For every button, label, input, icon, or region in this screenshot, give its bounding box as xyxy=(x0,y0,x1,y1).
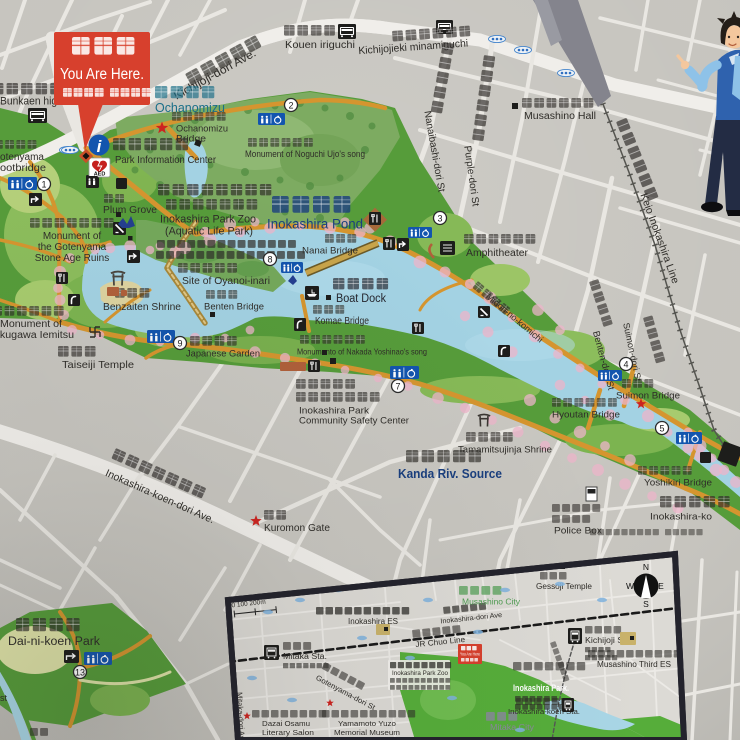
svg-text:Plum Grove: Plum Grove xyxy=(103,205,157,216)
svg-text:st: st xyxy=(0,693,8,703)
svg-text:Hyoutan Bridge: Hyoutan Bridge xyxy=(552,409,620,420)
svg-text:13: 13 xyxy=(75,667,85,677)
svg-text:okugawa Iemitsu: okugawa Iemitsu xyxy=(0,330,74,341)
svg-text:4: 4 xyxy=(623,359,628,369)
svg-text:7: 7 xyxy=(395,381,400,391)
svg-text:You Are Here.: You Are Here. xyxy=(60,66,144,83)
svg-text:You Are Here: You Are Here xyxy=(460,652,480,657)
svg-text:(Aquatic Life Park): (Aquatic Life Park) xyxy=(165,226,253,238)
svg-text:2: 2 xyxy=(288,100,293,110)
svg-text:Musashino Third ES: Musashino Third ES xyxy=(597,660,671,669)
svg-text:N: N xyxy=(643,562,649,572)
svg-text:Inokashira-ko: Inokashira-ko xyxy=(650,511,712,522)
svg-text:1: 1 xyxy=(41,179,46,189)
svg-text:Park Information Center: Park Information Center xyxy=(115,154,216,166)
svg-text:Boat Dock: Boat Dock xyxy=(336,293,386,305)
svg-text:Literary Salon: Literary Salon xyxy=(262,728,314,737)
svg-text:E: E xyxy=(658,581,664,591)
svg-text:Suimon Bridge: Suimon Bridge xyxy=(616,390,680,401)
svg-text:Benzaiten Shrine: Benzaiten Shrine xyxy=(103,302,181,313)
svg-text:5: 5 xyxy=(659,423,664,433)
svg-text:Site of Oyanoi-inari: Site of Oyanoi-inari xyxy=(182,276,270,287)
svg-text:Nanai Bridge: Nanai Bridge xyxy=(302,245,358,256)
svg-text:Musashino City: Musashino City xyxy=(462,597,521,607)
svg-text:Stone Age Ruins: Stone Age Ruins xyxy=(35,253,110,264)
svg-text:Yoshikiri Bridge: Yoshikiri Bridge xyxy=(644,477,712,488)
svg-text:Japanese Garden: Japanese Garden xyxy=(186,348,260,359)
svg-text:ootbridge: ootbridge xyxy=(0,163,46,174)
svg-text:Komae Bridge: Komae Bridge xyxy=(315,316,369,327)
svg-text:Community Safety Center: Community Safety Center xyxy=(299,415,409,426)
svg-text:3: 3 xyxy=(437,213,442,223)
svg-text:otenyama: otenyama xyxy=(0,152,44,163)
svg-text:Dai-ni-koen Park: Dai-ni-koen Park xyxy=(8,636,100,648)
svg-text:the Gotenyama: the Gotenyama xyxy=(38,242,107,253)
svg-text:Yamamoto Yuzo: Yamamoto Yuzo xyxy=(338,719,396,728)
svg-text:Taiseiji Temple: Taiseiji Temple xyxy=(62,359,134,371)
svg-text:8: 8 xyxy=(267,254,272,264)
svg-text:9: 9 xyxy=(177,338,182,348)
svg-text:W: W xyxy=(626,581,634,591)
svg-text:Dazai Osamu: Dazai Osamu xyxy=(262,719,310,728)
svg-text:Kouen iriguchi: Kouen iriguchi xyxy=(285,39,355,51)
svg-text:Monument of: Monument of xyxy=(43,231,102,242)
svg-text:Monumento of Nakada Yoshinao's: Monumento of Nakada Yoshinao's song xyxy=(297,347,427,357)
svg-text:Monument of: Monument of xyxy=(0,319,62,330)
svg-text:Inokashira Pond: Inokashira Pond xyxy=(267,217,363,232)
svg-text:Mitaka City: Mitaka City xyxy=(490,723,534,732)
svg-text:Monument of Noguchi Ujo's song: Monument of Noguchi Ujo's song xyxy=(245,149,365,159)
svg-text:Inokashira Park Zoo: Inokashira Park Zoo xyxy=(160,214,256,226)
svg-text:Benten Bridge: Benten Bridge xyxy=(204,301,264,312)
svg-text:Inokashira Park.: Inokashira Park. xyxy=(513,683,569,693)
svg-text:Mitaka Sta.: Mitaka Sta. xyxy=(283,652,327,661)
svg-text:Kuromon Gate: Kuromon Gate xyxy=(264,523,330,534)
svg-text:Amphitheater: Amphitheater xyxy=(466,248,529,259)
svg-text:Memorial Museum: Memorial Museum xyxy=(334,728,400,737)
svg-text:Kanda Riv. Source: Kanda Riv. Source xyxy=(398,467,502,481)
svg-text:Musashino Hall: Musashino Hall xyxy=(524,111,596,122)
svg-text:Inokashira Park Zoo: Inokashira Park Zoo xyxy=(392,670,448,677)
svg-text:Inokashira ES: Inokashira ES xyxy=(348,617,398,626)
svg-text:S: S xyxy=(643,599,649,609)
svg-text:Bridge: Bridge xyxy=(176,133,206,144)
